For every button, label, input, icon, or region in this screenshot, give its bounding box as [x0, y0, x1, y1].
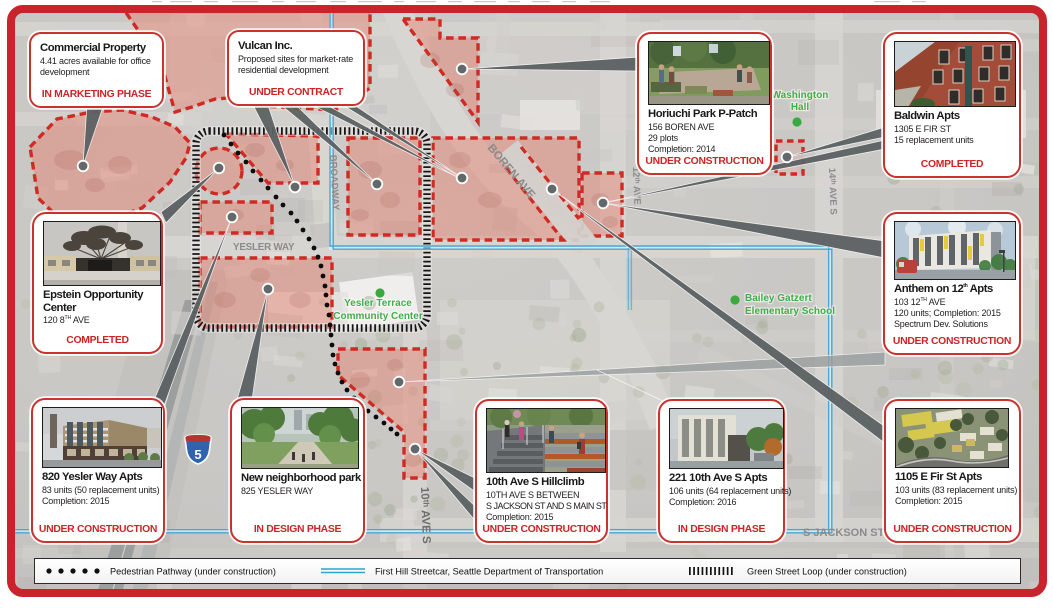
svg-text:Washington: Washington: [772, 90, 829, 101]
svg-text:Elementary School: Elementary School: [745, 306, 835, 317]
svg-text:YESLER WAY: YESLER WAY: [233, 242, 295, 253]
svg-text:Pedestrian Pathway (under cons: Pedestrian Pathway (under construction): [110, 567, 276, 577]
svg-text:S JACKSON ST: S JACKSON ST: [803, 527, 885, 539]
svg-text:Community Center: Community Center: [333, 311, 423, 322]
svg-text:14th AVE S: 14th AVE S: [826, 168, 839, 215]
svg-text:12th AVE: 12th AVE: [630, 167, 642, 205]
svg-text:First Hill Streetcar, Seattle: First Hill Streetcar, Seattle Department…: [375, 567, 603, 577]
svg-text:Hall: Hall: [791, 102, 810, 113]
svg-text:Green Street Loop (under const: Green Street Loop (under construction): [747, 567, 907, 577]
svg-text:Yesler Terrace: Yesler Terrace: [344, 298, 412, 309]
svg-text:10th AVE S: 10th AVE S: [418, 487, 432, 545]
svg-text:Bailey Gatzert: Bailey Gatzert: [745, 293, 812, 304]
svg-text:5: 5: [194, 447, 201, 462]
